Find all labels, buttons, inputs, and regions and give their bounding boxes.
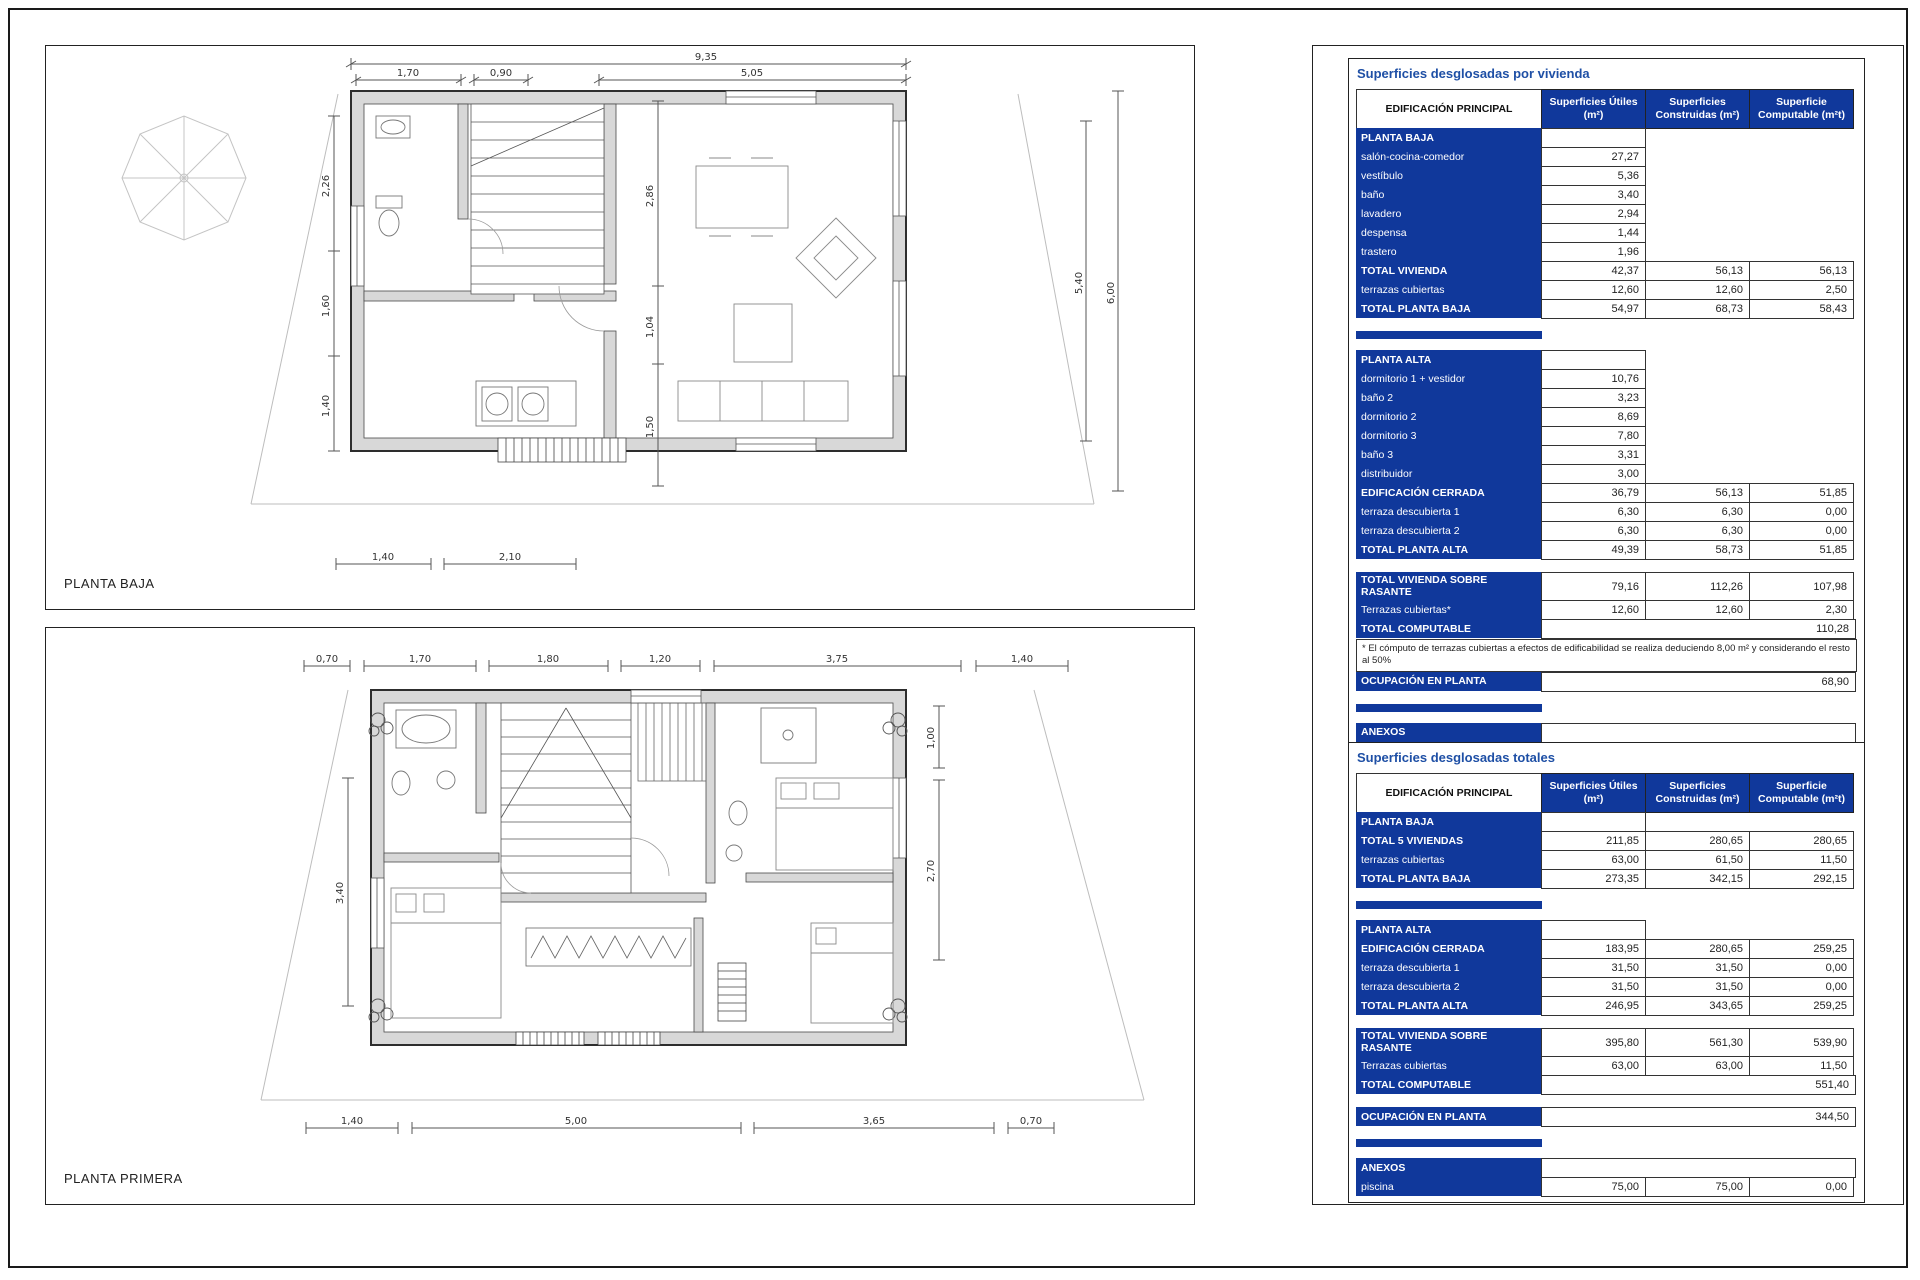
dim-label: 1,40 [372,552,394,563]
value-cell: 75,00 [1541,1177,1646,1197]
value-cell: 280,65 [1645,939,1750,959]
row-label: terraza descubierta 2 [1356,521,1542,541]
table-row: EDIFICACIÓN CERRADA36,7956,1351,85 [1356,483,1857,503]
table-grid: EDIFICACIÓN PRINCIPALSuperficies Útiles … [1356,773,1857,1197]
table-row: terrazas cubiertas12,6012,602,50 [1356,280,1857,300]
table-row: baño3,40 [1356,185,1857,205]
value-cell: 342,15 [1645,869,1750,889]
value-cell: 2,50 [1749,280,1854,300]
table-row: terraza descubierta 231,5031,500,00 [1356,977,1857,997]
value-cell: 3,23 [1541,388,1646,408]
table-row: dormitorio 28,69 [1356,407,1857,427]
value-cell: 110,28 [1541,619,1856,639]
table-row: TOTAL PLANTA BAJA54,9768,7358,43 [1356,299,1857,319]
table-gap [1356,692,1857,704]
value-cell: 273,35 [1541,869,1646,889]
table-title: Superficies desglosadas totales [1357,750,1855,765]
value-cell: 11,50 [1749,850,1854,870]
row-label: TOTAL VIVIENDA SOBRE RASANTE [1356,1028,1542,1057]
table-row: TOTAL VIVIENDA SOBRE RASANTE79,16112,261… [1356,572,1857,601]
parasol-icon [122,116,246,240]
dim-label: 0,70 [1020,1116,1042,1127]
value-cell: 51,85 [1749,540,1854,560]
table-row: baño 23,23 [1356,388,1857,408]
value-cell: 10,76 [1541,369,1646,389]
value-cell: 61,50 [1645,850,1750,870]
row-label: terraza descubierta 1 [1356,502,1542,522]
row-label: salón-cocina-comedor [1356,147,1542,167]
value-cell: 0,00 [1749,521,1854,541]
dim-label: 1,70 [409,654,431,665]
table-row: Terrazas cubiertas*12,6012,602,30 [1356,600,1857,620]
row-label: Terrazas cubiertas* [1356,600,1542,620]
table-gap [1356,319,1857,331]
table-row: piscina75,0075,000,00 [1356,1177,1857,1197]
table-row: terraza descubierta 16,306,300,00 [1356,502,1857,522]
row-label: piscina [1356,1177,1542,1197]
table-row: terraza descubierta 26,306,300,00 [1356,521,1857,541]
empty-cell [1541,920,1646,940]
value-cell: 36,79 [1541,483,1646,503]
table-gap [1356,1095,1857,1107]
row-label: despensa [1356,223,1542,243]
value-cell: 539,90 [1749,1028,1854,1057]
value-cell: 12,60 [1645,280,1750,300]
dim-label: 1,20 [649,654,671,665]
row-label: OCUPACIÓN EN PLANTA [1356,672,1542,692]
value-cell: 54,97 [1541,299,1646,319]
value-cell: 68,73 [1645,299,1750,319]
row-label: EDIFICACIÓN CERRADA [1356,939,1542,959]
table-gap [1356,1016,1857,1028]
value-cell: 6,30 [1541,502,1646,522]
staircase [501,703,631,893]
table-corner-header: EDIFICACIÓN PRINCIPAL [1356,89,1542,129]
value-cell: 3,31 [1541,445,1646,465]
value-cell: 292,15 [1749,869,1854,889]
table-row: OCUPACIÓN EN PLANTA68,90 [1356,672,1857,692]
value-cell: 1,96 [1541,242,1646,262]
value-cell: 0,00 [1749,502,1854,522]
table-row: terrazas cubiertas63,0061,5011,50 [1356,850,1857,870]
value-cell: 31,50 [1645,958,1750,978]
value-cell: 31,50 [1541,958,1646,978]
table-superficies-totales: Superficies desglosadas totalesEDIFICACI… [1348,742,1865,1203]
table-row: ANEXOS [1356,723,1857,743]
dim-label: 2,10 [499,552,521,563]
row-label: PLANTA ALTA [1356,920,1542,940]
terrace-hatch [498,438,626,462]
value-cell: 6,30 [1645,502,1750,522]
table-row: PLANTA BAJA [1356,128,1857,148]
dim-label: 3,40 [335,882,346,904]
value-cell: 2,30 [1749,600,1854,620]
value-cell: 8,69 [1541,407,1646,427]
dim-label: 5,00 [565,1116,587,1127]
value-cell: 246,95 [1541,996,1646,1016]
table-header-row: EDIFICACIÓN PRINCIPALSuperficies Útiles … [1356,89,1857,129]
value-cell: 0,00 [1749,1177,1854,1197]
table-row: dormitorio 1 + vestidor10,76 [1356,369,1857,389]
value-cell: 280,65 [1749,831,1854,851]
table-column-header: Superficies Construidas (m²) [1645,89,1750,129]
row-label: PLANTA ALTA [1356,350,1542,370]
value-cell: 56,13 [1749,261,1854,281]
row-label: OCUPACIÓN EN PLANTA [1356,1107,1542,1127]
table-gap [1356,889,1857,901]
row-label: baño 3 [1356,445,1542,465]
value-cell: 6,30 [1645,521,1750,541]
drawing-sheet: { "plans": { "baja": { "label": "PLANTA … [0,0,1920,1280]
row-label: Terrazas cubiertas [1356,1056,1542,1076]
row-label: dormitorio 2 [1356,407,1542,427]
dim-label: 1,00 [926,727,937,749]
table-row: terraza descubierta 131,5031,500,00 [1356,958,1857,978]
table-row: PLANTA ALTA [1356,920,1857,940]
dim-label: 2,70 [926,860,937,882]
row-label: PLANTA BAJA [1356,812,1542,832]
table-row: TOTAL COMPUTABLE110,28 [1356,619,1857,639]
row-label: TOTAL PLANTA BAJA [1356,299,1542,319]
empty-cell [1541,1158,1856,1178]
value-cell: 56,13 [1645,483,1750,503]
section-cap [1356,901,1542,910]
row-label: baño 2 [1356,388,1542,408]
row-label: PLANTA BAJA [1356,128,1542,148]
row-label: TOTAL 5 VIVIENDAS [1356,831,1542,851]
staircase [471,104,604,294]
value-cell: 259,25 [1749,939,1854,959]
dim-label: 2,26 [321,175,332,197]
row-label: trastero [1356,242,1542,262]
value-cell: 79,16 [1541,572,1646,601]
table-gap [1356,560,1857,572]
table-row: TOTAL PLANTA ALTA49,3958,7351,85 [1356,540,1857,560]
value-cell: 51,85 [1749,483,1854,503]
table-row: distribuidor3,00 [1356,464,1857,484]
table-row [1356,901,1857,921]
table-grid: EDIFICACIÓN PRINCIPALSuperficies Útiles … [1356,89,1857,762]
value-cell: 31,50 [1645,977,1750,997]
table-row: lavadero2,94 [1356,204,1857,224]
dim-label: 5,40 [1074,272,1085,294]
value-cell: 6,30 [1541,521,1646,541]
table-row [1356,704,1857,724]
row-label: vestíbulo [1356,166,1542,186]
table-row: baño 33,31 [1356,445,1857,465]
value-cell: 395,80 [1541,1028,1646,1057]
table-row: TOTAL 5 VIVIENDAS211,85280,65280,65 [1356,831,1857,851]
dim-label: 3,75 [826,654,848,665]
dim-label: 1,80 [537,654,559,665]
value-cell: 3,00 [1541,464,1646,484]
plan-title-planta-primera: PLANTA PRIMERA [64,1171,183,1186]
row-label: dormitorio 3 [1356,426,1542,446]
table-column-header: Superficie Computable (m²t) [1749,773,1854,813]
planta-primera-drawing: 0,70 1,70 1,80 1,20 3,75 1,40 3,40 1,00 … [46,628,1192,1202]
planta-baja-drawing: 9,35 1,70 0,90 5,05 2,26 1,60 1,40 2,86 … [46,46,1192,607]
row-label: terraza descubierta 2 [1356,977,1542,997]
table-title: Superficies desglosadas por vivienda [1357,66,1855,81]
table-row: salón-cocina-comedor27,27 [1356,147,1857,167]
dim-label: 2,86 [645,185,656,207]
plan-frame-planta-primera: 0,70 1,70 1,80 1,20 3,75 1,40 3,40 1,00 … [45,627,1195,1205]
table-corner-header: EDIFICACIÓN PRINCIPAL [1356,773,1542,813]
dim-label: 1,40 [321,395,332,417]
value-cell: 551,40 [1541,1075,1856,1095]
value-cell: 11,50 [1749,1056,1854,1076]
value-cell: 112,26 [1645,572,1750,601]
table-row: PLANTA ALTA [1356,350,1857,370]
row-label: terrazas cubiertas [1356,850,1542,870]
table-row: PLANTA BAJA [1356,812,1857,832]
dim-label: 1,04 [645,316,656,338]
dim-label: 1,60 [321,295,332,317]
table-row: OCUPACIÓN EN PLANTA344,50 [1356,1107,1857,1127]
row-label: TOTAL COMPUTABLE [1356,619,1542,639]
table-column-header: Superficies Útiles (m²) [1541,89,1646,129]
section-cap [1356,704,1542,713]
value-cell: 31,50 [1541,977,1646,997]
value-cell: 42,37 [1541,261,1646,281]
dim-label: 5,05 [741,68,763,79]
value-cell: 58,43 [1749,299,1854,319]
empty-cell [1541,812,1646,832]
value-cell: 107,98 [1749,572,1854,601]
dim-label: 6,00 [1106,282,1117,304]
value-cell: 49,39 [1541,540,1646,560]
row-label: terrazas cubiertas [1356,280,1542,300]
value-cell: 75,00 [1645,1177,1750,1197]
row-label: EDIFICACIÓN CERRADA [1356,483,1542,503]
dim-label: 1,40 [1011,654,1033,665]
value-cell: 211,85 [1541,831,1646,851]
value-cell: 12,60 [1541,600,1646,620]
section-cap [1356,331,1542,340]
table-row: TOTAL VIVIENDA SOBRE RASANTE395,80561,30… [1356,1028,1857,1057]
table-column-header: Superficie Computable (m²t) [1749,89,1854,129]
value-cell: 0,00 [1749,977,1854,997]
row-label: ANEXOS [1356,723,1542,743]
row-label: TOTAL PLANTA ALTA [1356,996,1542,1016]
empty-cell [1541,350,1646,370]
table-header-row: EDIFICACIÓN PRINCIPALSuperficies Útiles … [1356,773,1857,813]
row-label: baño [1356,185,1542,205]
row-label: terraza descubierta 1 [1356,958,1542,978]
table-row: TOTAL VIVIENDA42,3756,1356,13 [1356,261,1857,281]
dim-label: 9,35 [695,52,717,63]
dim-label: 0,70 [316,654,338,665]
value-cell: 12,60 [1645,600,1750,620]
table-row: TOTAL PLANTA BAJA273,35342,15292,15 [1356,869,1857,889]
table-footnote: * El cómputo de terrazas cubiertas a efe… [1356,639,1857,672]
value-cell: 3,40 [1541,185,1646,205]
value-cell: 56,13 [1645,261,1750,281]
row-label: distribuidor [1356,464,1542,484]
dim-label: 1,50 [645,416,656,438]
row-label: lavadero [1356,204,1542,224]
dim-label: 1,40 [341,1116,363,1127]
value-cell: 68,90 [1541,672,1856,692]
table-row: despensa1,44 [1356,223,1857,243]
dim-label: 0,90 [490,68,512,79]
value-cell: 561,30 [1645,1028,1750,1057]
table-row: vestíbulo5,36 [1356,166,1857,186]
table-gap [1356,1127,1857,1139]
value-cell: 7,80 [1541,426,1646,446]
value-cell: 63,00 [1645,1056,1750,1076]
table-row: TOTAL PLANTA ALTA246,95343,65259,25 [1356,996,1857,1016]
empty-cell [1541,723,1856,743]
table-row: TOTAL COMPUTABLE551,40 [1356,1075,1857,1095]
value-cell: 58,73 [1645,540,1750,560]
dim-label: 3,65 [863,1116,885,1127]
plan-title-planta-baja: PLANTA BAJA [64,576,155,591]
table-superficies-por-vivienda: Superficies desglosadas por viviendaEDIF… [1348,58,1865,768]
row-label: TOTAL VIVIENDA SOBRE RASANTE [1356,572,1542,601]
table-column-header: Superficies Útiles (m²) [1541,773,1646,813]
building-walls [351,91,906,451]
value-cell: 0,00 [1749,958,1854,978]
value-cell: 5,36 [1541,166,1646,186]
row-label: TOTAL VIVIENDA [1356,261,1542,281]
row-label: ANEXOS [1356,1158,1542,1178]
table-row [1356,331,1857,351]
table-row [1356,1139,1857,1159]
empty-cell [1541,128,1646,148]
value-cell: 343,65 [1645,996,1750,1016]
row-label: dormitorio 1 + vestidor [1356,369,1542,389]
dim-label: 1,70 [397,68,419,79]
section-cap [1356,1139,1542,1148]
row-label: TOTAL PLANTA ALTA [1356,540,1542,560]
value-cell: 27,27 [1541,147,1646,167]
value-cell: 1,44 [1541,223,1646,243]
row-label: TOTAL PLANTA BAJA [1356,869,1542,889]
value-cell: 2,94 [1541,204,1646,224]
table-row: Terrazas cubiertas63,0063,0011,50 [1356,1056,1857,1076]
table-row: trastero1,96 [1356,242,1857,262]
table-row: dormitorio 37,80 [1356,426,1857,446]
value-cell: 12,60 [1541,280,1646,300]
row-label: TOTAL COMPUTABLE [1356,1075,1542,1095]
value-cell: 344,50 [1541,1107,1856,1127]
value-cell: 63,00 [1541,850,1646,870]
plan-frame-planta-baja: 9,35 1,70 0,90 5,05 2,26 1,60 1,40 2,86 … [45,45,1195,610]
table-column-header: Superficies Construidas (m²) [1645,773,1750,813]
value-cell: 259,25 [1749,996,1854,1016]
table-row: ANEXOS [1356,1158,1857,1178]
value-cell: 183,95 [1541,939,1646,959]
building-walls [371,690,906,1045]
table-row: EDIFICACIÓN CERRADA183,95280,65259,25 [1356,939,1857,959]
value-cell: 280,65 [1645,831,1750,851]
value-cell: 63,00 [1541,1056,1646,1076]
